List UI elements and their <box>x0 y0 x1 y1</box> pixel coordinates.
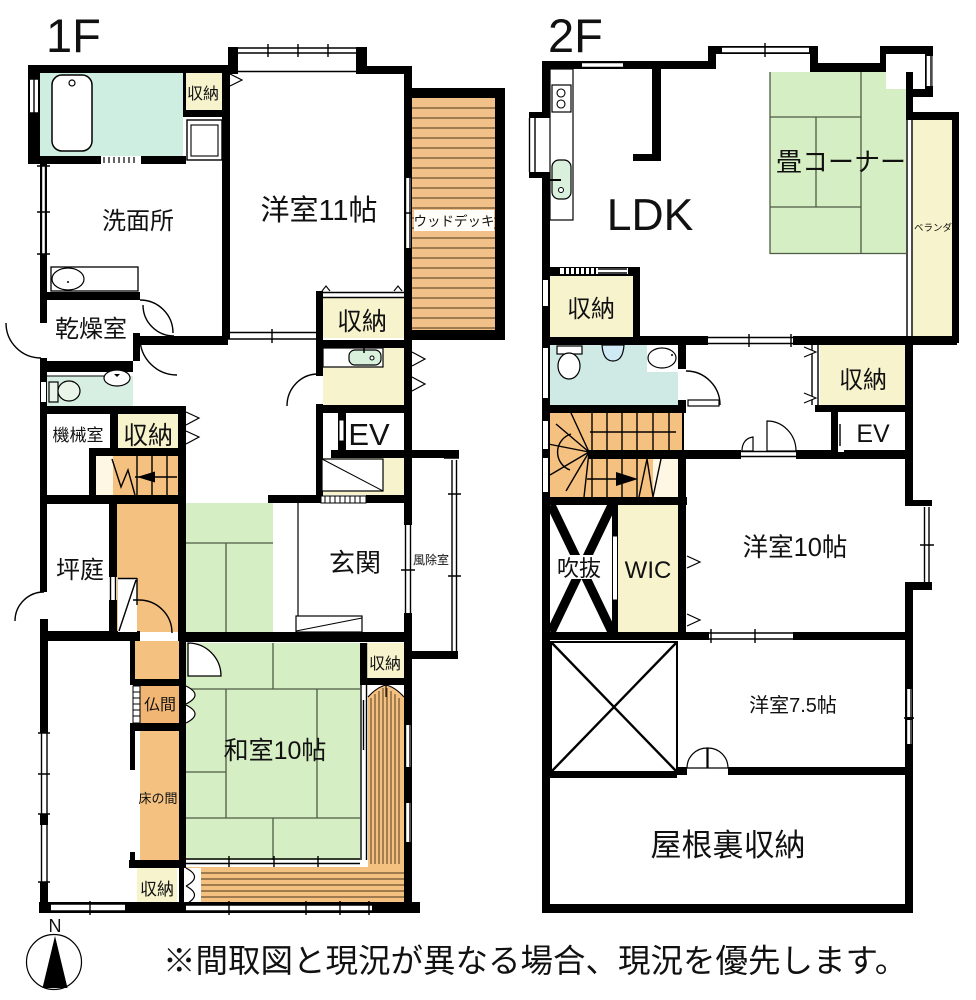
svg-text:収納: 収納 <box>839 367 887 394</box>
svg-text:収納: 収納 <box>187 85 219 103</box>
svg-text:床の間: 床の間 <box>138 791 177 806</box>
svg-text:LDK: LDK <box>607 191 694 240</box>
svg-text:EV: EV <box>348 417 390 452</box>
svg-text:機械室: 機械室 <box>53 426 104 445</box>
svg-text:屋根裏収納: 屋根裏収納 <box>651 828 806 863</box>
svg-text:洋室11帖: 洋室11帖 <box>260 194 377 227</box>
svg-text:※間取図と現況が異なる場合、現況を優先します。: ※間取図と現況が異なる場合、現況を優先します。 <box>163 943 907 979</box>
svg-text:N: N <box>49 916 62 936</box>
svg-text:洋室10帖: 洋室10帖 <box>743 534 848 562</box>
svg-text:洗面所: 洗面所 <box>102 208 174 235</box>
svg-text:風除室: 風除室 <box>413 552 449 567</box>
svg-text:2F: 2F <box>548 9 603 62</box>
svg-text:ウッドデッキ: ウッドデッキ <box>414 213 495 229</box>
svg-text:畳コーナー: 畳コーナー <box>776 147 906 177</box>
svg-text:1F: 1F <box>46 9 101 62</box>
svg-text:収納: 収納 <box>123 422 173 450</box>
svg-text:収納: 収納 <box>140 880 174 899</box>
svg-text:収納: 収納 <box>369 655 401 673</box>
svg-text:収納: 収納 <box>567 296 615 323</box>
svg-text:玄関: 玄関 <box>329 548 381 578</box>
svg-text:EV: EV <box>856 420 890 448</box>
svg-text:WIC: WIC <box>625 557 672 584</box>
svg-text:坪庭: 坪庭 <box>56 557 104 584</box>
svg-text:洋室7.5帖: 洋室7.5帖 <box>749 694 837 717</box>
svg-text:乾燥室: 乾燥室 <box>55 316 127 343</box>
svg-text:吹抜: 吹抜 <box>557 556 601 581</box>
svg-text:収納: 収納 <box>337 308 387 336</box>
svg-text:仏間: 仏間 <box>144 697 176 714</box>
svg-text:和室10帖: 和室10帖 <box>224 737 327 765</box>
svg-text:ベランダ: ベランダ <box>914 222 953 234</box>
